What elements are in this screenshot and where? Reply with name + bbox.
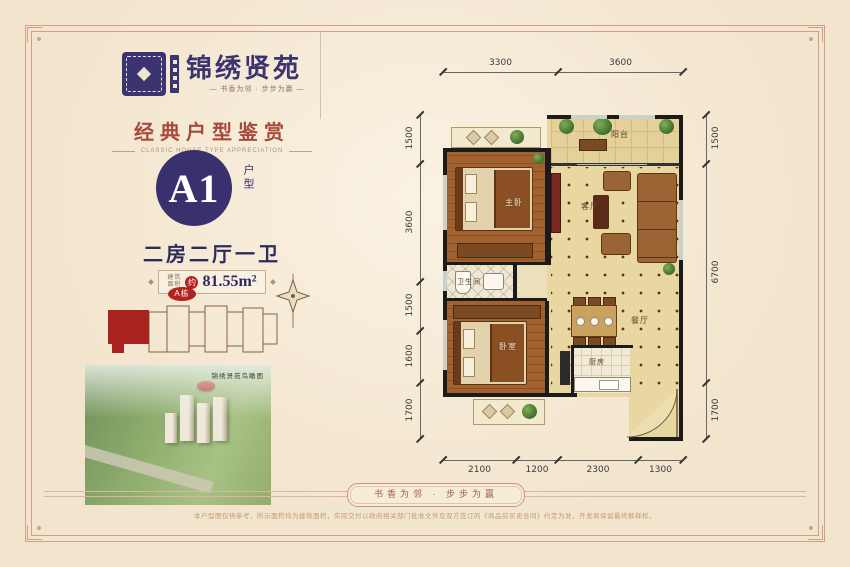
room-label-bath: 卫生间 [457, 277, 481, 287]
section-subtitle-row: CLASSIC HOUSE TYPE APPRECIATION [112, 148, 312, 154]
room-label-master: 主卧 [505, 197, 523, 208]
plant-icon [559, 119, 574, 134]
dim-left-4: 1600 [405, 336, 415, 376]
footer-ribbon: 书香为邻 · 步步为赢 [347, 483, 525, 507]
armchair [603, 171, 631, 191]
entry-door-arc [625, 387, 681, 439]
window [571, 115, 607, 119]
brand-seal-icon [122, 52, 166, 96]
unit-code-badge: A1 [156, 150, 232, 226]
corner-ornament-icon [27, 27, 42, 42]
diamond-icon [149, 279, 155, 285]
plant-icon [533, 153, 544, 164]
dim-bottom-3: 2300 [558, 465, 638, 475]
aerial-photo: 锦绣贤苑鸟瞰图 [85, 365, 271, 505]
dim-top-1: 3300 [443, 58, 558, 68]
balcony-bench [579, 139, 607, 151]
compass-icon [272, 272, 314, 330]
dim-line-bottom [443, 460, 683, 461]
brand-seal-tag-icon [170, 55, 179, 93]
plant-icon [663, 263, 675, 275]
dresser-bedroom [453, 305, 541, 319]
plant-icon [659, 119, 674, 134]
room-label-bedroom: 卧室 [499, 341, 517, 352]
corner-ornament-icon [808, 27, 823, 42]
unit-code-label: 户型 [240, 164, 256, 192]
footer-disclaimer: 本户型图仅供参考，所示面积均为建筑面积，实际交付以政府相关部门批准文件及双方签订… [75, 510, 775, 520]
window [443, 320, 447, 370]
window-planter [451, 127, 541, 148]
dim-bottom-1: 2100 [443, 465, 516, 475]
brand-name: 锦绣贤苑 [186, 48, 336, 85]
siteplan-building-label: A栋 [168, 287, 196, 301]
dim-top-2: 3600 [558, 58, 683, 68]
room-label-dining: 餐厅 [631, 315, 649, 326]
dining-table [571, 305, 617, 337]
tv-cabinet [551, 173, 561, 233]
section-subtitle: CLASSIC HOUSE TYPE APPRECIATION [141, 148, 283, 154]
dim-bottom-2: 1200 [516, 465, 558, 475]
dim-bottom-4: 1300 [638, 465, 683, 475]
dim-left-2: 3600 [405, 202, 415, 242]
divider-line [112, 151, 135, 152]
dim-left-3: 1500 [405, 285, 415, 325]
photo-haze [85, 365, 271, 505]
dim-right-2: 6700 [711, 252, 721, 292]
poster-page: 锦绣贤苑 — 书香为邻 · 步步为赢 — 经典户型鉴赏 CLASSIC HOUS… [0, 0, 850, 567]
window [619, 115, 655, 119]
corridor-floor [513, 265, 547, 298]
dim-left-5: 1700 [405, 390, 415, 430]
fridge [560, 351, 570, 385]
dim-right-1: 1500 [711, 118, 721, 158]
dim-right-3: 1700 [711, 390, 721, 430]
window [443, 271, 447, 291]
divider-line [289, 151, 312, 152]
dim-line-top [443, 72, 683, 73]
section-title: 经典户型鉴赏 [112, 116, 312, 145]
dim-left-1: 1500 [405, 118, 415, 158]
corner-ornament-icon [808, 525, 823, 540]
room-label-kitchen: 厨房 [589, 357, 605, 367]
area-value: 81.55m² [202, 273, 256, 291]
unit-layout: 二房二厅一卫 [112, 238, 312, 267]
window [443, 175, 447, 230]
window-planter [473, 399, 545, 425]
plant-icon [593, 118, 612, 135]
corner-ornament-icon [27, 525, 42, 540]
room-label-living: 客厅 [581, 201, 599, 212]
room-label-balcony: 阳台 [611, 129, 629, 140]
bath-sink [483, 273, 504, 290]
kitchen-counter [574, 377, 631, 392]
brand-tagline: — 书香为邻 · 步步为赢 — [182, 84, 332, 94]
siteplan-outline [104, 302, 282, 362]
dresser-master [457, 243, 533, 258]
sofa-main [637, 173, 677, 263]
armchair [601, 233, 631, 255]
window [679, 200, 683, 260]
aerial-photo-caption: 锦绣贤苑鸟瞰图 [212, 370, 265, 380]
bed-bedroom [453, 321, 527, 385]
floorplan: 阳台 主卧 客厅 卫生间 卧室 餐厅 厨房 [443, 115, 683, 441]
